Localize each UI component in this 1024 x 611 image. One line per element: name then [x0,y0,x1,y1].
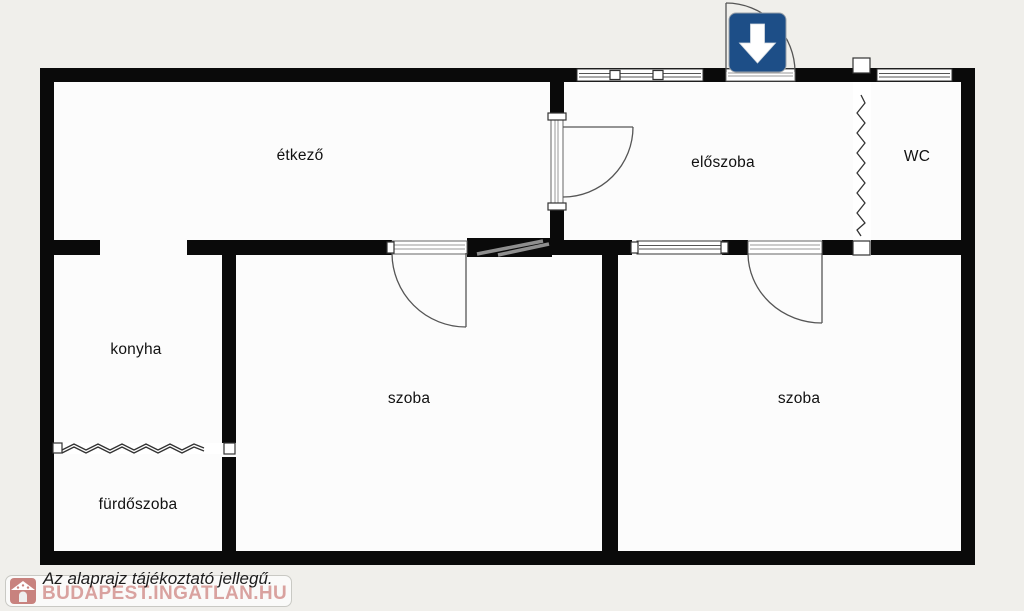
plan-paper [40,68,975,565]
hatched-wall-block [467,238,552,257]
floor-plan-drawing [0,0,1024,611]
floorplan-page: { "colors": { "page_background": "#f0efe… [0,0,1024,611]
room-label-eloszoba: előszoba [691,154,755,172]
room-label-konyha: konyha [110,341,161,359]
disclaimer-text: Az alaprajz tájékoztató jellegű. [43,569,273,589]
window-eloszoba-szoba2 [631,241,728,254]
room-label-szoba2: szoba [778,390,820,408]
window-etkezo-top [577,69,703,81]
house-icon [10,578,36,604]
entrance-down-arrow-icon [729,13,786,72]
room-label-szoba1: szoba [388,390,430,408]
light-partition-eloszoba-wc [853,58,871,255]
wavy-partition-konyha-furdoszoba [53,443,235,454]
room-label-furdoszoba: fürdőszoba [99,496,178,514]
room-label-wc: WC [904,148,930,166]
window-wc-top [877,69,952,81]
room-label-etkezo: étkező [277,147,324,165]
